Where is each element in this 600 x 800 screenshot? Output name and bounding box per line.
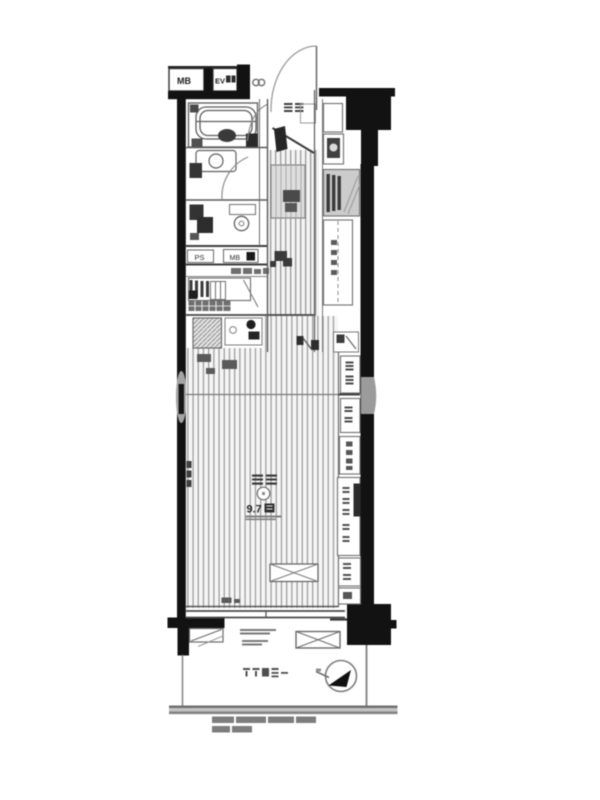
svg-text:MB: MB <box>177 76 191 86</box>
svg-text:MB: MB <box>230 255 241 262</box>
svg-text:9.7: 9.7 <box>247 504 262 516</box>
svg-text:EV: EV <box>215 77 225 86</box>
svg-text:PS: PS <box>195 253 205 262</box>
